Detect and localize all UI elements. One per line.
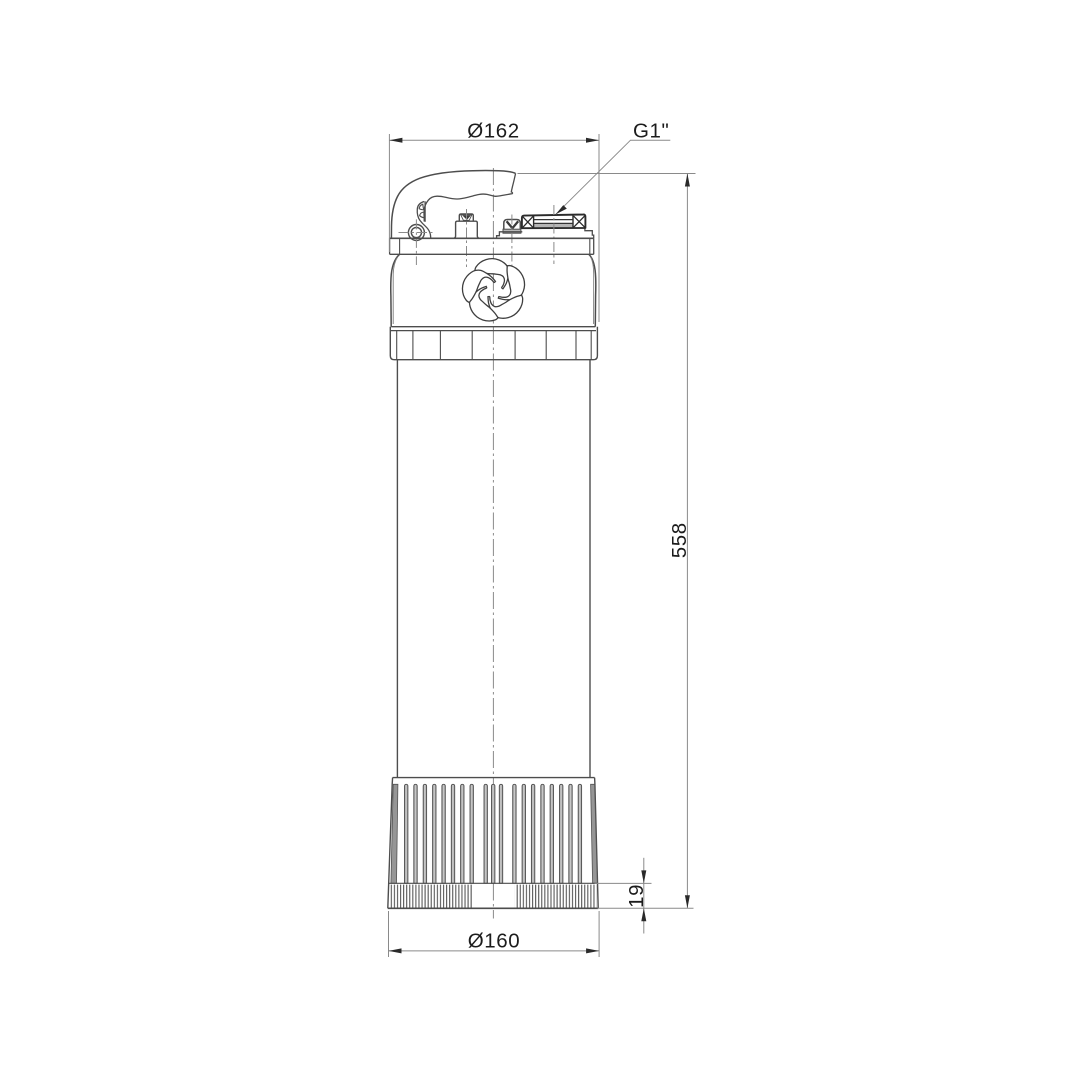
svg-text:Ø160: Ø160 (468, 930, 521, 953)
svg-text:558: 558 (668, 522, 691, 558)
svg-text:G1": G1" (633, 119, 669, 142)
svg-text:Ø162: Ø162 (467, 120, 520, 143)
svg-text:19: 19 (625, 884, 648, 908)
